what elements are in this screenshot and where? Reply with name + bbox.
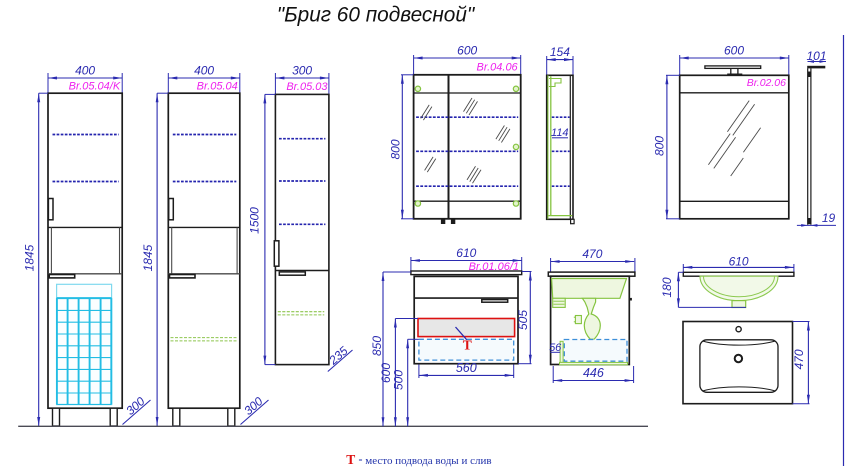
svg-text:470: 470	[792, 349, 806, 369]
svg-text:место подвода воды и слив: место подвода воды и слив	[365, 455, 491, 467]
svg-text:Т: Т	[463, 338, 472, 353]
svg-text:Br.05.03: Br.05.03	[286, 81, 328, 93]
svg-text:400: 400	[75, 64, 95, 78]
svg-text:154: 154	[550, 45, 570, 59]
svg-text:Br.05.04/K: Br.05.04/K	[69, 81, 121, 93]
svg-text:300: 300	[292, 64, 312, 78]
svg-text:1500: 1500	[247, 207, 261, 234]
svg-text:Br.02.06: Br.02.06	[747, 77, 786, 89]
svg-text:505: 505	[516, 310, 530, 330]
svg-text:300: 300	[241, 394, 266, 418]
svg-text:500: 500	[391, 370, 405, 390]
svg-text:610: 610	[729, 255, 749, 269]
svg-text:"Бриг 60 подвесной": "Бриг 60 подвесной"	[277, 3, 476, 26]
svg-text:800: 800	[653, 136, 667, 156]
svg-text:-: -	[359, 452, 363, 466]
svg-text:800: 800	[388, 139, 402, 159]
svg-text:114: 114	[551, 127, 569, 139]
svg-text:560: 560	[456, 361, 477, 375]
svg-text:446: 446	[583, 366, 604, 380]
svg-text:300: 300	[123, 394, 148, 418]
svg-text:Т: Т	[346, 452, 355, 467]
svg-text:610: 610	[456, 246, 476, 260]
svg-text:101: 101	[806, 49, 826, 63]
svg-text:180: 180	[660, 277, 674, 297]
svg-text:600: 600	[457, 44, 477, 58]
svg-text:1845: 1845	[141, 244, 155, 271]
svg-text:Br.04.06: Br.04.06	[477, 61, 519, 73]
svg-text:850: 850	[370, 336, 384, 356]
svg-text:470: 470	[582, 247, 602, 261]
svg-text:400: 400	[194, 64, 214, 78]
svg-text:Br.05.04: Br.05.04	[197, 81, 238, 93]
svg-text:600: 600	[724, 44, 744, 58]
svg-text:1845: 1845	[23, 244, 37, 271]
svg-text:19: 19	[822, 211, 836, 225]
